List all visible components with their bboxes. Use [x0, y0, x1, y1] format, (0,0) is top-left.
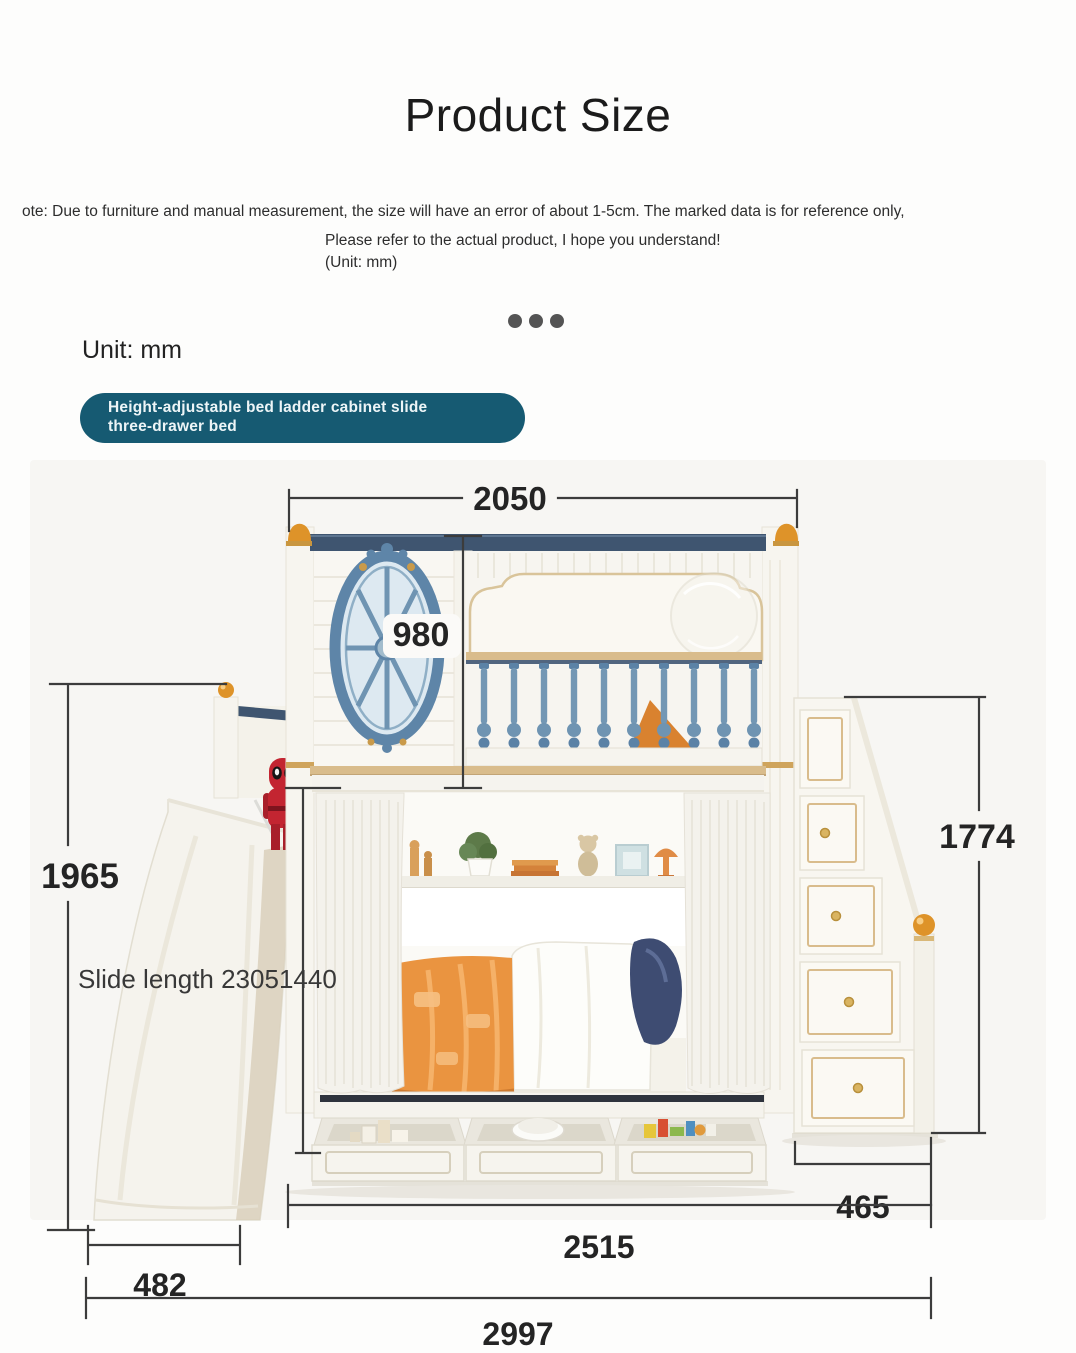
dim-label-overall-height: 1965: [41, 857, 119, 896]
bunk-bed: [285, 524, 799, 1199]
dim-label-ladder-depth: 465: [836, 1189, 889, 1225]
dim-label-slide-length: Slide length 23051440: [78, 964, 337, 994]
lower-bunk-bedding: [390, 938, 687, 1096]
dim-label-top-width: 2050: [473, 480, 546, 517]
dim-label-bed-length: 2515: [563, 1229, 634, 1265]
product-size-diagram: 2050 980 1965 1774 Slide length 23051440…: [0, 0, 1076, 1353]
curtain-left: [316, 793, 404, 1093]
glass-ring-decor-icon: [671, 573, 757, 659]
dim-label-ladder-height: 1774: [939, 818, 1015, 856]
dim-label-overall-length: 2997: [482, 1316, 553, 1352]
dim-slide-width: 482: [88, 1226, 240, 1303]
bed-post-left: [286, 527, 314, 1113]
dim-label-upper-bunk-height: 980: [393, 616, 450, 654]
stair-finial-ball-icon: [913, 914, 935, 936]
curtain-right: [684, 793, 770, 1094]
dim-overall-length: 2997: [86, 1278, 931, 1352]
